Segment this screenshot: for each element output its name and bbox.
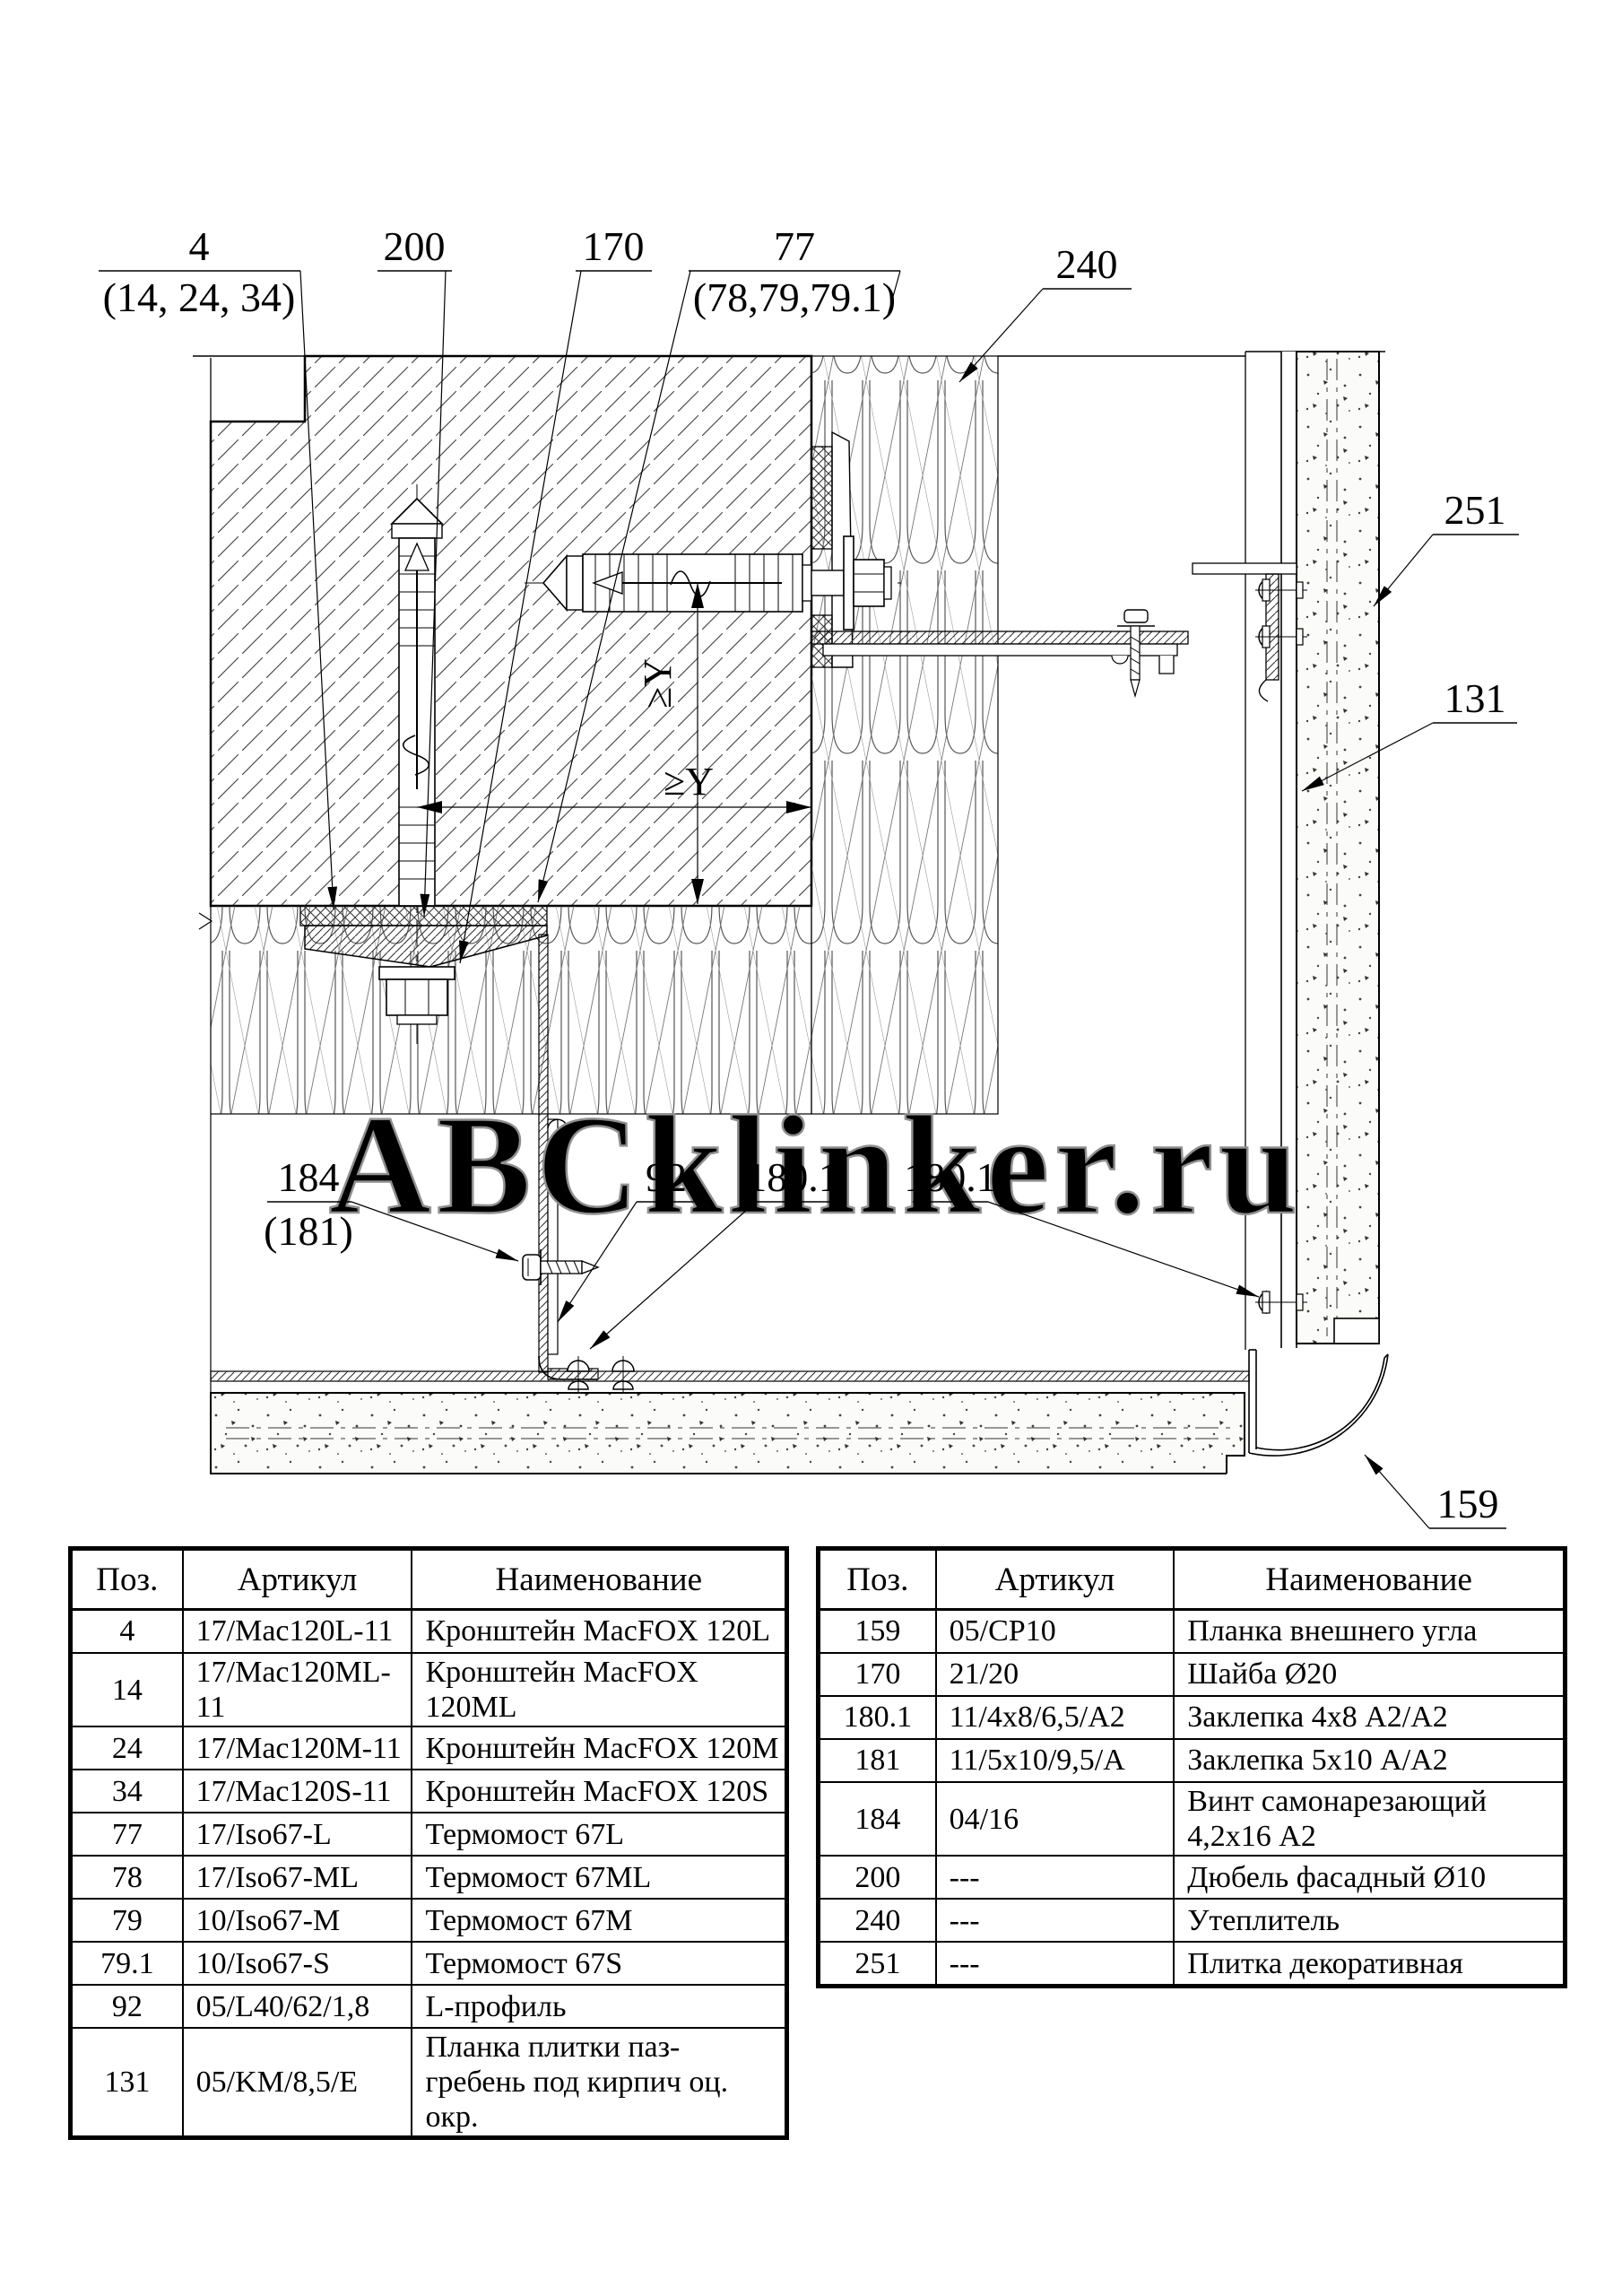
table-row: 1417/Mac120ML-11Кронштейн MacFOX 120ML xyxy=(72,1653,785,1726)
table-row: 13105/KM/8,5/EПланка плитки паз-гребень … xyxy=(72,2028,785,2136)
callout-tile-251: 251 xyxy=(1374,487,1519,606)
table-cell: L-профиль xyxy=(412,1985,785,2028)
table-row: 9205/L40/62/1,8L-профиль xyxy=(72,1985,785,2028)
table-cell: Термомост 67L xyxy=(412,1813,785,1856)
screw-head xyxy=(1124,610,1148,622)
corner-flashing-159 xyxy=(1249,1350,1388,1456)
table-cell: 170 xyxy=(820,1653,936,1696)
table-row: 7717/Iso67-LТермомост 67L xyxy=(72,1813,785,1856)
table-cell: 17/Mac120L-11 xyxy=(183,1610,412,1654)
table-cell: Утеплитель xyxy=(1174,1899,1564,1942)
table-cell: 04/16 xyxy=(936,1782,1175,1856)
soffit-panel xyxy=(211,1393,1245,1474)
callout-label: 200 xyxy=(384,223,446,269)
table-cell: 159 xyxy=(820,1610,936,1654)
table-cell: 77 xyxy=(72,1813,183,1856)
wall-section xyxy=(193,356,811,906)
table-cell: Планка внешнего угла xyxy=(1174,1610,1564,1654)
table-cell: Кронштейн MacFOX 120L xyxy=(412,1610,785,1654)
table-row: 18404/16Винт самонарезающий 4,2x16 А2 xyxy=(820,1782,1564,1856)
dimension-label-vertical: ≥Y xyxy=(636,658,680,709)
thermal-break-pad-top xyxy=(811,447,832,549)
table-cell: Заклепка 5x10 А/А2 xyxy=(1174,1739,1564,1782)
table-cell: Кронштейн MacFOX 120ML xyxy=(412,1653,785,1726)
table-cell: 11/4x8/6,5/A2 xyxy=(936,1696,1175,1739)
table-cell: 180.1 xyxy=(820,1696,936,1739)
table-cell: Дюбель фасадный Ø10 xyxy=(1174,1856,1564,1899)
table-row: 7910/Iso67-MТермомост 67M xyxy=(72,1899,785,1942)
decorative-tile-251 xyxy=(1297,352,1379,1344)
callout-label: 92 xyxy=(646,1154,687,1200)
table-cell: Термомост 67S xyxy=(412,1942,785,1985)
table-row: 2417/Mac120M-11Кронштейн MacFOX 120M xyxy=(72,1726,785,1770)
table-cell: Заклепка 4x8 А2/А2 xyxy=(1174,1696,1564,1739)
bottom-flashing xyxy=(211,1371,1249,1381)
table-row: 251---Плитка декоративная xyxy=(820,1942,1564,1985)
washer-20 xyxy=(844,536,854,630)
washer-20 xyxy=(379,967,455,979)
table-row: 240---Утеплитель xyxy=(820,1899,1564,1942)
callout-label: 184 xyxy=(278,1154,340,1200)
table-cell: 11/5x10/9,5/A xyxy=(936,1739,1175,1782)
table-row: 7817/Iso67-MLТермомост 67ML xyxy=(72,1856,785,1899)
table-cell: 200 xyxy=(820,1856,936,1899)
table-cell: 21/20 xyxy=(936,1653,1175,1696)
table-cell: 24 xyxy=(72,1726,183,1770)
table-cell: Термомост 67ML xyxy=(412,1856,785,1899)
callout-label: 240 xyxy=(1056,241,1118,287)
table-row: 180.111/4x8/6,5/A2Заклепка 4x8 А2/А2 xyxy=(820,1696,1564,1739)
table-cell: Кронштейн MacFOX 120M xyxy=(412,1726,785,1770)
table-cell: 79 xyxy=(72,1899,183,1942)
parts-table-left: Поз.АртикулНаименование417/Mac120L-11Кро… xyxy=(68,1546,789,2140)
table-cell: Винт самонарезающий 4,2x16 А2 xyxy=(1174,1782,1564,1856)
self-tapping-screw-184 xyxy=(523,1249,598,1285)
table-cell: Шайба Ø20 xyxy=(1174,1653,1564,1696)
table-cell: Термомост 67M xyxy=(412,1899,785,1942)
table-cell: --- xyxy=(936,1856,1175,1899)
table-cell: Планка плитки паз-гребень под кирпич оц.… xyxy=(412,2028,785,2136)
table-cell: 78 xyxy=(72,1856,183,1899)
callout-label: 4 xyxy=(189,223,210,269)
parts-table-right: Поз.АртикулНаименование15905/CP10Планка … xyxy=(816,1546,1567,1988)
table-row: 3417/Mac120S-11Кронштейн MacFOX 120S xyxy=(72,1770,785,1813)
table-row: 200---Дюбель фасадный Ø10 xyxy=(820,1856,1564,1899)
table-cell: 17/Mac120M-11 xyxy=(183,1726,412,1770)
table-cell: 10/Iso67-S xyxy=(183,1942,412,1985)
column-header: Поз. xyxy=(820,1550,936,1610)
table-cell: 181 xyxy=(820,1739,936,1782)
table-cell: 79.1 xyxy=(72,1942,183,1985)
table-cell: 17/Iso67-ML xyxy=(183,1856,412,1899)
table-row: 17021/20Шайба Ø20 xyxy=(820,1653,1564,1696)
table-cell: 92 xyxy=(72,1985,183,2028)
table-cell: 17/Iso67-L xyxy=(183,1813,412,1856)
column-header: Артикул xyxy=(183,1550,412,1610)
break-mark xyxy=(199,913,212,929)
table-cell: 4 xyxy=(72,1610,183,1654)
dimension-label-horizontal: ≥Y xyxy=(664,760,714,804)
table-cell: 184 xyxy=(820,1782,936,1856)
callout-sublabel: (78,79,79.1) xyxy=(693,274,896,320)
callout-label: 180.1 xyxy=(904,1154,997,1200)
column-header: Поз. xyxy=(72,1550,183,1610)
table-row: 417/Mac120L-11Кронштейн MacFOX 120L xyxy=(72,1610,785,1654)
table-cell: 34 xyxy=(72,1770,183,1813)
callout-label: 159 xyxy=(1437,1481,1499,1526)
table-row: 79.110/Iso67-SТермомост 67S xyxy=(72,1942,785,1985)
column-header: Артикул xyxy=(936,1550,1175,1610)
column-header: Наименование xyxy=(1174,1550,1564,1610)
table-cell: --- xyxy=(936,1899,1175,1942)
table-cell: --- xyxy=(936,1942,1175,1985)
table-cell: 240 xyxy=(820,1899,936,1942)
column-header: Наименование xyxy=(412,1550,785,1610)
table-cell: 05/L40/62/1,8 xyxy=(183,1985,412,2028)
table-cell: 131 xyxy=(72,2028,183,2136)
callout-corner-159: 159 xyxy=(1365,1455,1506,1528)
callout-label: 251 xyxy=(1444,487,1506,533)
table-cell: 05/CP10 xyxy=(936,1610,1175,1654)
table-cell: 05/KM/8,5/E xyxy=(183,2028,412,2136)
table-cell: 17/Mac120ML-11 xyxy=(183,1653,412,1726)
table-cell: Кронштейн MacFOX 120S xyxy=(412,1770,785,1813)
table-row: 15905/CP10Планка внешнего угла xyxy=(820,1610,1564,1654)
table-cell: 17/Mac120S-11 xyxy=(183,1770,412,1813)
callout-sublabel: (181) xyxy=(264,1208,353,1254)
table-cell: 251 xyxy=(820,1942,936,1985)
callout-label: 180.1 xyxy=(746,1154,839,1200)
table-cell: Плитка декоративная xyxy=(1174,1942,1564,1985)
callout-label: 77 xyxy=(774,223,815,269)
callout-label: 131 xyxy=(1444,675,1506,721)
table-row: 18111/5x10/9,5/AЗаклепка 5x10 А/А2 xyxy=(820,1739,1564,1782)
table-cell: 10/Iso67-M xyxy=(183,1899,412,1942)
callout-label: 170 xyxy=(583,223,645,269)
table-cell: 14 xyxy=(72,1653,183,1726)
callout-sublabel: (14, 24, 34) xyxy=(103,274,296,320)
